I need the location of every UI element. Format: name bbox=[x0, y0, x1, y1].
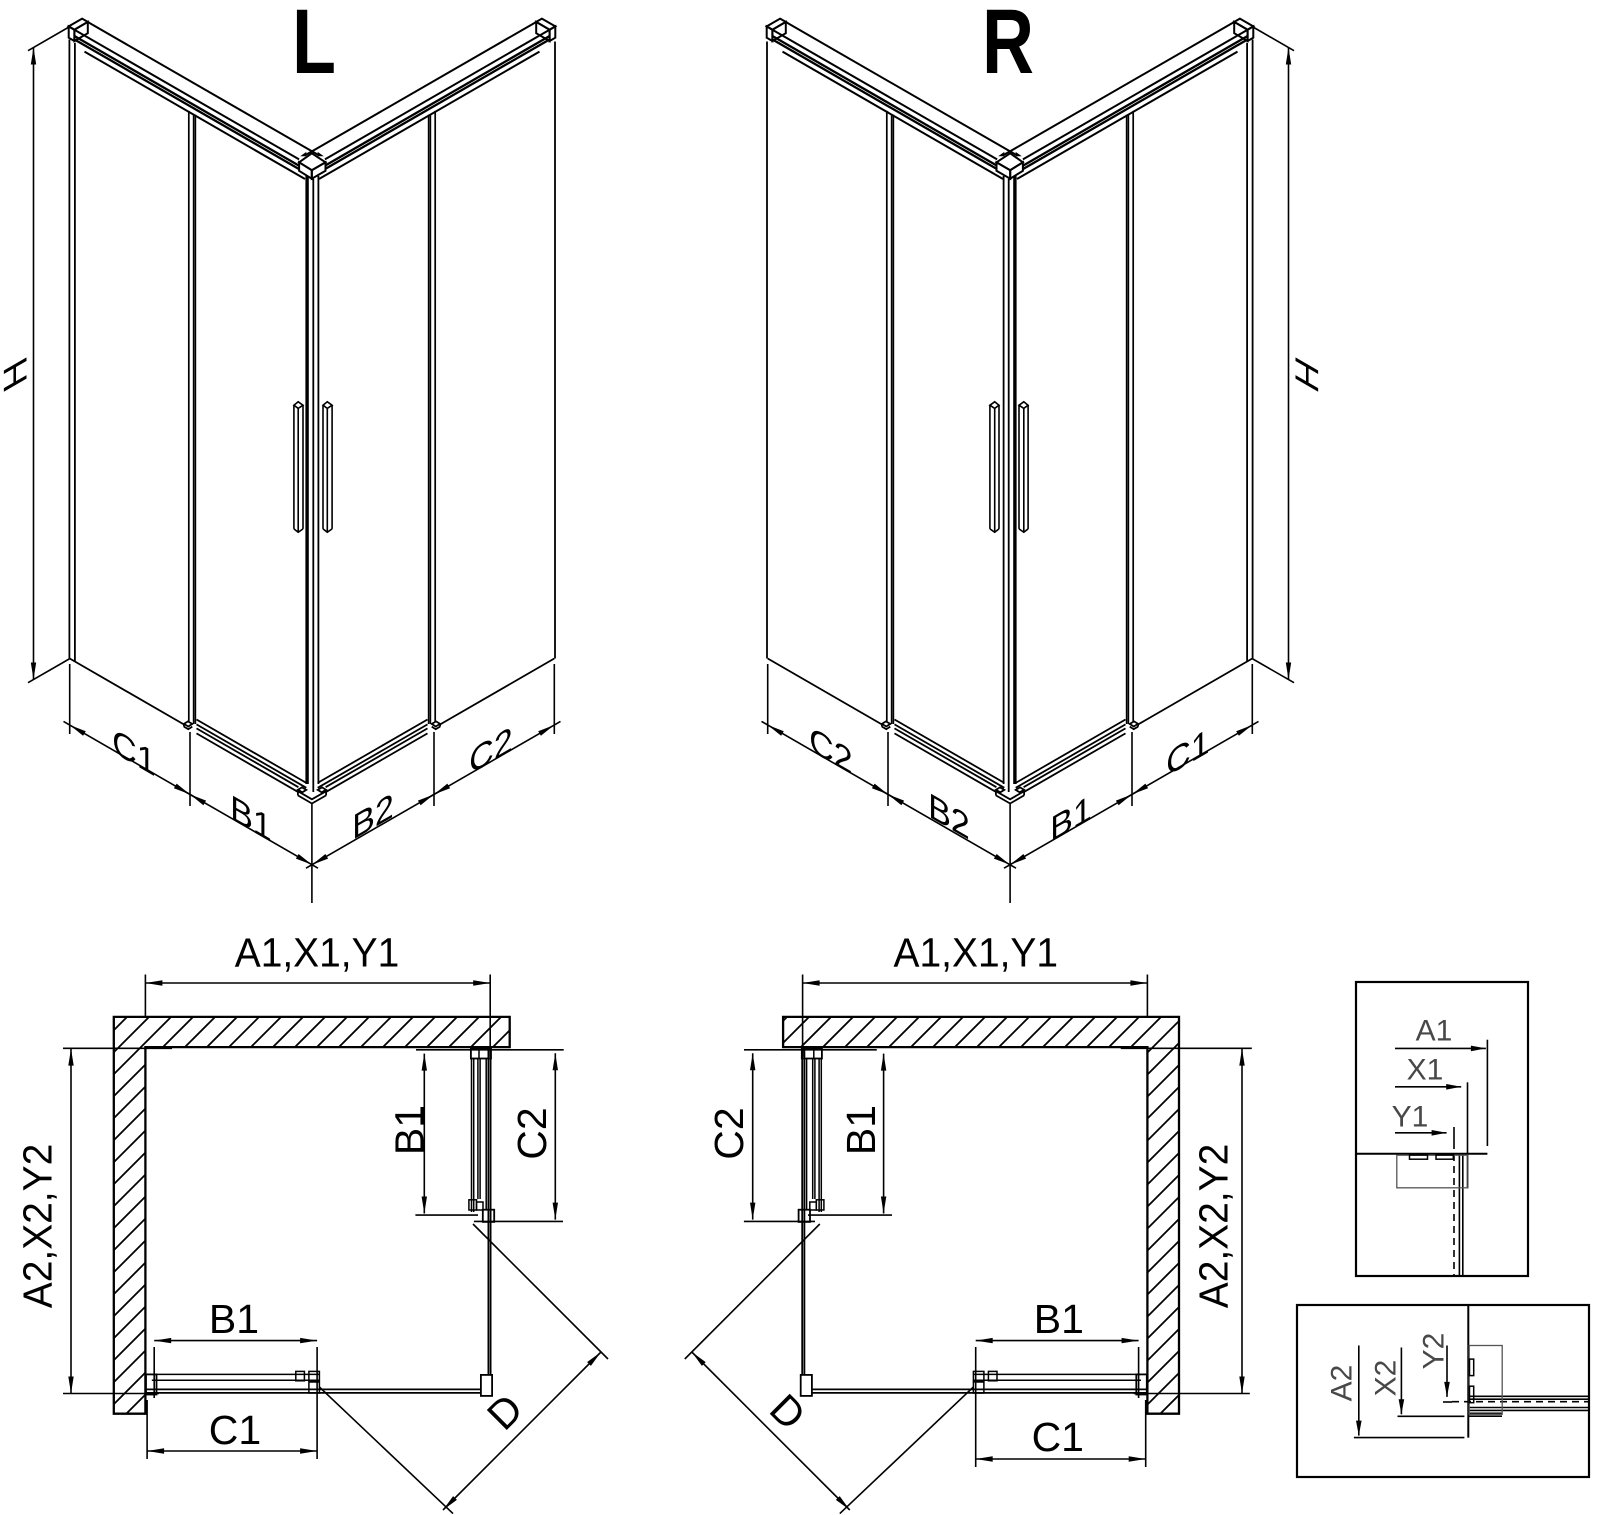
svg-text:C1: C1 bbox=[1032, 1414, 1084, 1460]
svg-text:C1: C1 bbox=[209, 1407, 261, 1453]
svg-text:X1: X1 bbox=[1407, 1054, 1444, 1087]
svg-text:A2,X2,Y2: A2,X2,Y2 bbox=[15, 1144, 60, 1308]
svg-text:Y1: Y1 bbox=[1392, 1101, 1429, 1134]
svg-text:L: L bbox=[292, 0, 336, 93]
svg-text:A2: A2 bbox=[1326, 1365, 1359, 1402]
svg-text:A1,X1,Y1: A1,X1,Y1 bbox=[235, 930, 399, 975]
svg-text:A1,X1,Y1: A1,X1,Y1 bbox=[894, 930, 1058, 975]
svg-text:B1: B1 bbox=[209, 1296, 259, 1342]
svg-text:B1: B1 bbox=[838, 1105, 884, 1155]
svg-text:B1: B1 bbox=[1034, 1296, 1084, 1342]
svg-text:Y2: Y2 bbox=[1418, 1333, 1451, 1370]
svg-text:C2: C2 bbox=[706, 1107, 752, 1159]
svg-text:A1: A1 bbox=[1416, 1015, 1453, 1048]
svg-text:A2,X2,Y2: A2,X2,Y2 bbox=[1191, 1144, 1236, 1308]
svg-text:R: R bbox=[982, 0, 1034, 93]
svg-text:X2: X2 bbox=[1370, 1360, 1403, 1397]
svg-text:B1: B1 bbox=[387, 1105, 433, 1155]
svg-text:C2: C2 bbox=[509, 1107, 555, 1159]
